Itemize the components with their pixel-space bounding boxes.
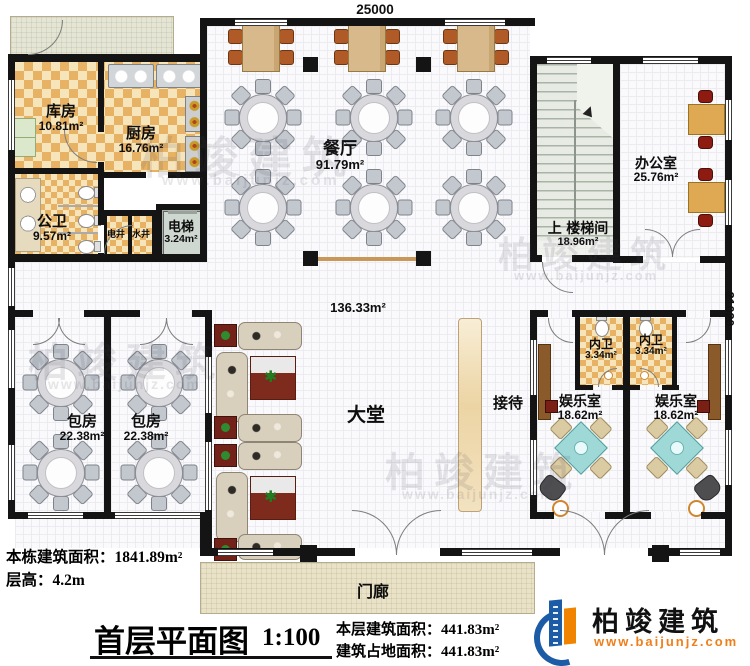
building-area-label: 本栋建筑面积： bbox=[6, 549, 115, 566]
wall bbox=[8, 54, 206, 62]
window bbox=[8, 80, 15, 150]
room-area: 22.38m² bbox=[46, 430, 118, 443]
building-area-value: 1841.89m² bbox=[115, 549, 183, 566]
window bbox=[547, 57, 591, 64]
chair-icon bbox=[443, 29, 458, 44]
round-table-top bbox=[135, 359, 183, 407]
chair-icon bbox=[466, 79, 482, 94]
plant-icon: ✱ bbox=[264, 370, 277, 386]
round-table-top bbox=[450, 184, 498, 232]
wall bbox=[98, 162, 104, 174]
room-label-game2: 娱乐室 18.62m² bbox=[645, 394, 707, 422]
room-name: 餐厅 bbox=[296, 140, 384, 158]
chair-icon bbox=[53, 496, 69, 511]
room-label-stairwell: 上 楼梯间 18.96m² bbox=[538, 220, 618, 249]
stair-rail bbox=[574, 100, 576, 234]
round-table-top bbox=[350, 184, 398, 232]
room-name: 厨房 bbox=[103, 126, 179, 142]
footprint-value: 441.83m² bbox=[441, 644, 499, 660]
chair-icon bbox=[366, 231, 382, 246]
room-area: 136.33m² bbox=[330, 300, 386, 315]
lobby-area-label: 136.33m² bbox=[318, 301, 398, 315]
room-label-kitchen: 厨房 16.76m² bbox=[103, 126, 179, 155]
round-table-top bbox=[350, 94, 398, 142]
chair-icon bbox=[85, 375, 100, 391]
chair-icon bbox=[336, 200, 351, 216]
room-area: 22.38m² bbox=[110, 430, 182, 443]
room-area: 18.96m² bbox=[538, 237, 618, 249]
window bbox=[530, 340, 537, 395]
room-label-storage: 库房 10.81m² bbox=[25, 104, 97, 133]
wall bbox=[530, 64, 537, 262]
chair-icon bbox=[225, 110, 240, 126]
wall bbox=[104, 172, 146, 178]
window bbox=[445, 19, 505, 26]
window bbox=[8, 268, 15, 306]
room-label-game1: 娱乐室 18.62m² bbox=[549, 394, 611, 422]
chair-icon bbox=[336, 110, 351, 126]
room-name: 门廊 bbox=[357, 584, 389, 601]
chair-icon bbox=[698, 168, 713, 181]
chair-icon bbox=[279, 29, 294, 44]
floor-height-note: 层高：4.2m bbox=[6, 568, 85, 590]
chair-icon bbox=[228, 50, 243, 65]
chair-icon bbox=[53, 344, 69, 359]
round-table-top bbox=[239, 184, 287, 232]
room-area: 9.57m² bbox=[18, 230, 86, 243]
round-table-top bbox=[37, 359, 85, 407]
banquet-table-top bbox=[242, 24, 280, 72]
room-name: 库房 bbox=[25, 104, 97, 120]
wc-partition bbox=[58, 205, 98, 207]
room-name: 娱乐室 bbox=[549, 394, 611, 409]
wall bbox=[84, 310, 140, 317]
chair-icon bbox=[23, 375, 38, 391]
wall bbox=[200, 512, 212, 556]
chair-icon bbox=[494, 29, 509, 44]
room-name: 包房 bbox=[110, 414, 182, 430]
window bbox=[725, 430, 732, 485]
sofa-bench bbox=[238, 442, 302, 470]
stair-up-label: 上 bbox=[548, 220, 562, 236]
round-table-top bbox=[239, 94, 287, 142]
chair-icon bbox=[466, 169, 482, 184]
chair-icon bbox=[398, 200, 413, 216]
sofa bbox=[216, 352, 248, 422]
chair-icon bbox=[443, 50, 458, 65]
column bbox=[652, 545, 669, 562]
room-name: 公卫 bbox=[18, 214, 86, 230]
chair-icon bbox=[255, 79, 271, 94]
sofa-bench bbox=[238, 414, 302, 442]
kitchen-sink bbox=[156, 64, 202, 88]
floor-area-label: 本层建筑面积： bbox=[336, 622, 441, 638]
room-area: 3.34m² bbox=[629, 347, 673, 358]
column bbox=[300, 545, 317, 562]
window bbox=[8, 445, 15, 500]
room-name: 内卫 bbox=[579, 338, 623, 351]
window bbox=[725, 340, 732, 395]
logo-tower-orange-icon bbox=[564, 607, 576, 644]
window bbox=[530, 440, 537, 495]
reception-desk bbox=[458, 318, 482, 512]
room-label-porch: 门廊 bbox=[348, 584, 398, 601]
room-name: 大堂 bbox=[347, 405, 385, 426]
brand-url: www.baijunjz.com bbox=[594, 634, 738, 649]
room-label-elec-shaft: 电井 bbox=[103, 230, 129, 240]
room-label-lobby: 大堂 bbox=[336, 406, 396, 427]
brand-logo-icon bbox=[534, 596, 588, 660]
room-name: 电井 bbox=[107, 229, 125, 239]
chair-icon bbox=[385, 29, 400, 44]
side-table bbox=[214, 416, 237, 439]
chair-icon bbox=[151, 496, 167, 511]
chair-icon bbox=[23, 465, 38, 481]
window bbox=[725, 180, 732, 225]
round-table-top bbox=[37, 449, 85, 497]
beam bbox=[318, 257, 418, 261]
room-name: 办公室 bbox=[624, 156, 688, 171]
chair-icon bbox=[436, 200, 451, 216]
chair-icon bbox=[366, 79, 382, 94]
window bbox=[462, 549, 532, 556]
room-label-elevator: 电梯 3.24m² bbox=[158, 220, 204, 245]
shelf bbox=[14, 137, 36, 157]
room-label-public-wc: 公卫 9.57m² bbox=[18, 214, 86, 243]
room-area: 16.76m² bbox=[103, 142, 179, 155]
room-label-office: 办公室 25.76m² bbox=[624, 156, 688, 184]
window bbox=[680, 549, 720, 556]
chair-icon bbox=[287, 200, 302, 216]
window bbox=[218, 549, 273, 556]
floor-area-note: 本层建筑面积：441.83m² bbox=[336, 618, 499, 639]
chair-icon bbox=[183, 465, 198, 481]
room-label-private2: 包房 22.38m² bbox=[110, 414, 182, 443]
logo-swoosh-icon bbox=[524, 600, 600, 666]
window bbox=[643, 57, 698, 64]
window bbox=[235, 19, 287, 26]
chair-icon bbox=[334, 29, 349, 44]
window bbox=[205, 442, 212, 510]
chair-icon bbox=[151, 344, 167, 359]
window bbox=[725, 100, 732, 140]
room-name: 娱乐室 bbox=[645, 394, 707, 409]
banquet-table-top bbox=[348, 24, 386, 72]
round-table-top bbox=[450, 94, 498, 142]
chair-icon bbox=[466, 231, 482, 246]
chair-icon bbox=[436, 110, 451, 126]
chair-icon bbox=[279, 50, 294, 65]
chair-icon bbox=[255, 141, 271, 156]
column bbox=[303, 57, 318, 72]
title-underline bbox=[90, 656, 332, 659]
wall bbox=[8, 168, 104, 174]
wall bbox=[8, 254, 206, 262]
column bbox=[416, 57, 431, 72]
logo-tower-blue-icon bbox=[549, 599, 562, 646]
window bbox=[205, 357, 212, 413]
wall bbox=[630, 385, 640, 390]
room-name: 电梯 bbox=[158, 220, 204, 234]
chair-icon bbox=[494, 50, 509, 65]
room-label-reception: 接待 bbox=[484, 396, 532, 412]
room-area: 3.34m² bbox=[579, 351, 623, 362]
office-desk bbox=[688, 182, 725, 213]
room-label-water-shaft: 水井 bbox=[128, 230, 154, 240]
chair-icon bbox=[698, 90, 713, 103]
room-area: 3.24m² bbox=[158, 234, 204, 245]
footprint-label: 建筑占地面积： bbox=[336, 644, 441, 660]
room-label-ensuite1: 内卫 3.34m² bbox=[579, 338, 623, 362]
floor-area-value: 441.83m² bbox=[441, 622, 499, 638]
wall bbox=[98, 62, 104, 132]
room-label-dining: 餐厅 91.79m² bbox=[296, 140, 384, 172]
window bbox=[8, 330, 15, 388]
column bbox=[303, 251, 318, 266]
side-table bbox=[214, 324, 237, 347]
chair-icon bbox=[498, 200, 513, 216]
chair-icon bbox=[498, 110, 513, 126]
toilet bbox=[595, 320, 609, 337]
side-table bbox=[214, 444, 237, 467]
chair-icon bbox=[85, 465, 100, 481]
floor-plan: 25000 21020 bbox=[0, 0, 750, 666]
room-name: 楼梯间 bbox=[566, 220, 608, 236]
window bbox=[115, 512, 200, 519]
sofa bbox=[216, 472, 248, 542]
footprint-note: 建筑占地面积：441.83m² bbox=[336, 640, 499, 661]
window bbox=[28, 512, 83, 519]
building-area-note: 本栋建筑面积：1841.89m² bbox=[6, 545, 182, 567]
chair-icon bbox=[287, 110, 302, 126]
chair-icon bbox=[255, 169, 271, 184]
room-name: 接待 bbox=[493, 395, 523, 412]
dimension-top: 25000 bbox=[325, 2, 425, 17]
chair-icon bbox=[121, 465, 136, 481]
kitchen-sink bbox=[108, 64, 154, 88]
chair-icon bbox=[121, 375, 136, 391]
round-table-top bbox=[135, 449, 183, 497]
chair-icon bbox=[334, 50, 349, 65]
column bbox=[416, 251, 431, 266]
room-area: 25.76m² bbox=[624, 171, 688, 184]
plan-scale: 1:100 bbox=[262, 624, 320, 652]
chair-icon bbox=[228, 29, 243, 44]
room-label-ensuite2: 内卫 3.34m² bbox=[629, 334, 673, 358]
sofa-bench bbox=[238, 534, 302, 560]
chair-icon bbox=[698, 214, 713, 227]
sofa-bench bbox=[238, 322, 302, 350]
chair-icon bbox=[398, 110, 413, 126]
room-area: 18.62m² bbox=[549, 409, 611, 422]
floor-height-label: 层高： bbox=[6, 572, 53, 589]
room-area: 10.81m² bbox=[25, 120, 97, 133]
chair-icon bbox=[225, 200, 240, 216]
banquet-table-top bbox=[457, 24, 495, 72]
plan-title: 首层平面图 bbox=[94, 616, 249, 661]
dimension-right: 21020 bbox=[722, 274, 736, 344]
chair-icon bbox=[385, 50, 400, 65]
toilet bbox=[78, 186, 95, 200]
room-area: 18.62m² bbox=[645, 409, 707, 422]
room-label-private1: 包房 22.38m² bbox=[46, 414, 118, 443]
floor-height-value: 4.2m bbox=[53, 572, 85, 589]
chair-icon bbox=[255, 231, 271, 246]
chair-icon bbox=[698, 136, 713, 149]
room-name: 包房 bbox=[46, 414, 118, 430]
chair-icon bbox=[466, 141, 482, 156]
wall bbox=[156, 204, 206, 210]
office-desk bbox=[688, 104, 725, 135]
room-name: 水井 bbox=[132, 229, 150, 239]
room-area: 91.79m² bbox=[296, 158, 384, 172]
chair-icon bbox=[183, 375, 198, 391]
room-name: 内卫 bbox=[629, 334, 673, 347]
plant-icon: ✱ bbox=[264, 490, 277, 506]
